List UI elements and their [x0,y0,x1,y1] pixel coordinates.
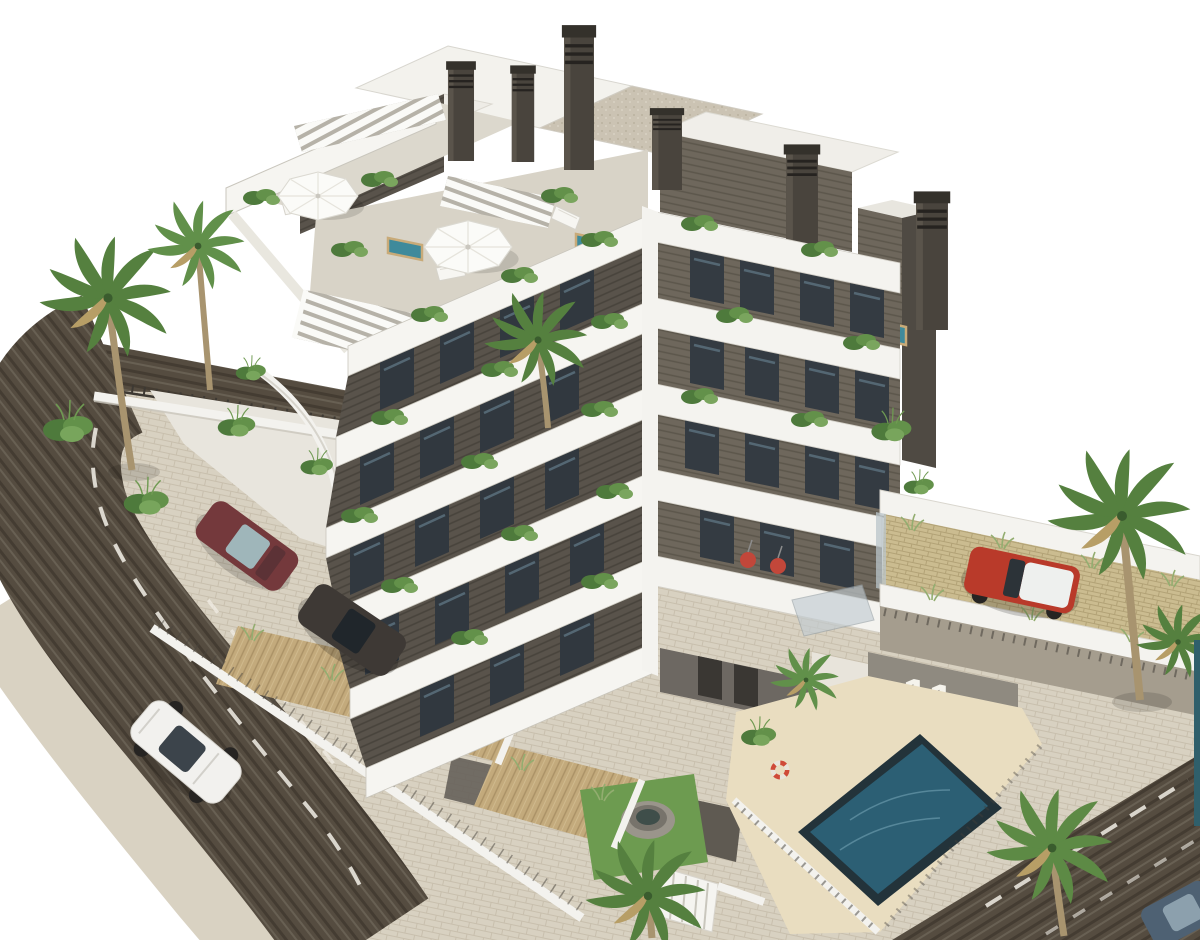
glass-balustrade [876,512,886,590]
hanging-chair [770,558,786,574]
corner-column [642,206,658,676]
entrance-door [734,664,758,708]
entrance-door [698,656,722,700]
hanging-chair [740,552,756,568]
chimney [914,191,950,330]
edge-artifact-strip [1194,640,1200,826]
chimney [562,25,596,170]
render-canvas: 11 [0,0,1200,940]
chimney [650,108,684,190]
architectural-render: 11 [0,0,1200,940]
chimney [446,61,476,161]
chimney [510,65,536,162]
